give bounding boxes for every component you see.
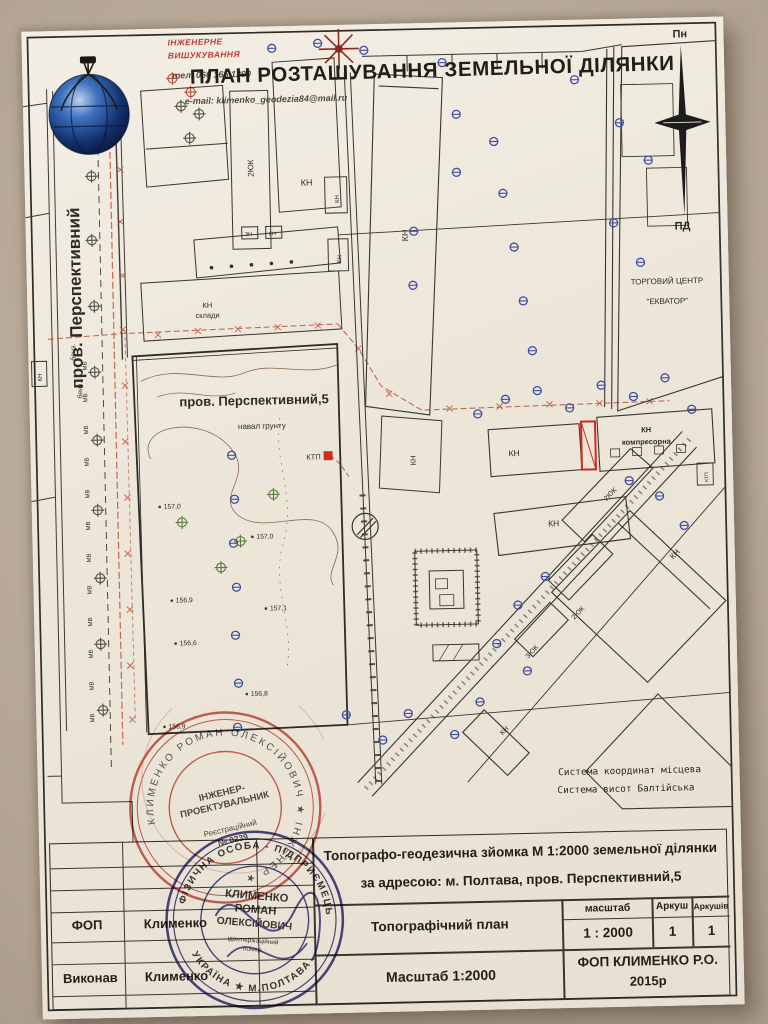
- diagonal-road: [350, 431, 732, 797]
- sheet-col-header: Аркуш: [652, 900, 691, 912]
- survey-title-line1: Топографо-геодезична зйомка М 1:2000 зем…: [318, 840, 722, 864]
- company-logo-globe: [36, 51, 148, 163]
- svg-text:МВ: МВ: [88, 617, 94, 626]
- svg-text:156,6: 156,6: [180, 640, 197, 647]
- bldg-label-kn: КН: [38, 374, 44, 382]
- firm-name: ФОП КЛИМЕНКО Р.О.: [565, 952, 731, 971]
- bldg-label-kn: КН: [509, 448, 520, 458]
- elevation-labels: 157,0 157,0 156,9 157,1 156,6 156,8 156,…: [164, 501, 290, 731]
- blue-stamp-line1: КЛИМЕНКО: [225, 888, 289, 905]
- mv-marker-labels: МВ МВ МВ МВ МВ МВ МВ МВ МВ МВ МВ МВ: [83, 361, 97, 722]
- scale-note: Масштаб 1:2000: [319, 965, 563, 986]
- compressor-buildings: [488, 409, 717, 556]
- bldg-label-2yuk: 2ЮК: [603, 486, 619, 502]
- bldg-label-kn: КН: [337, 255, 343, 263]
- kompresorna-label-1: КН: [641, 425, 651, 434]
- compass-south-label: ПД: [675, 220, 691, 232]
- svg-text:МВ: МВ: [90, 713, 96, 722]
- svg-text:157,0: 157,0: [256, 533, 273, 540]
- ktp-small-label: КТП: [704, 472, 710, 482]
- soil-note-label: навал грунту: [238, 421, 286, 431]
- paper-sheet: Пн ПД пров. Перспективний пров. Перспект…: [21, 16, 744, 1019]
- fop-label: ФОП: [72, 917, 103, 933]
- svg-text:157,1: 157,1: [270, 605, 287, 612]
- bldg-label-kn: КН: [301, 177, 313, 187]
- mall-label-1: ТОРГОВИЙ ЦЕНТР: [631, 276, 704, 287]
- bldg-label-kn: КН: [269, 231, 276, 237]
- benz-label: бенз.: [76, 382, 84, 399]
- ktp-label: КТП: [306, 452, 321, 461]
- svg-text:МВ: МВ: [89, 681, 95, 690]
- bldg-label-2yuk: 2ЮК: [246, 159, 255, 177]
- wall-dots: [210, 260, 294, 269]
- company-email: e-mail: klimenko_geodezia84@mail.ru: [185, 93, 348, 107]
- scale-value: 1 : 2000: [564, 924, 652, 941]
- company-name-line2: ВИШУКУВАННЯ: [168, 48, 240, 62]
- svg-text:156,8: 156,8: [251, 691, 268, 698]
- coord-system-line2: Система висот Балтійська: [557, 782, 694, 796]
- street-lines: [23, 88, 138, 844]
- scale-col-header: масштаб: [563, 901, 651, 915]
- svg-text:156,9: 156,9: [176, 597, 193, 604]
- bldg-label-kn: КН: [400, 229, 410, 241]
- coord-system-line1: Система координат місцева: [558, 764, 701, 778]
- svg-text:МВ: МВ: [87, 553, 93, 562]
- sklady-label-1: КН: [202, 301, 212, 310]
- bldg-label-kn: КН: [668, 547, 682, 561]
- doc-type: Топографічний план: [318, 915, 562, 935]
- company-name: ІНЖЕНЕРНЕ ВИШУКУВАННЯ: [167, 35, 240, 62]
- svg-text:МВ: МВ: [84, 425, 90, 434]
- bldg-label-kn: КН: [548, 518, 559, 528]
- survey-title-line2: за адресою: м. Полтава, пров. Перспектив…: [319, 868, 723, 892]
- manhole-symbols: [219, 31, 703, 747]
- street-cross-symbols: [83, 116, 110, 717]
- bldg-label-kn: КН: [335, 195, 341, 203]
- sheet-value: 1: [653, 923, 692, 939]
- contour-lines: [141, 365, 343, 669]
- kompresorna-label-2: компресорна: [622, 437, 672, 447]
- buildings-southeast: [457, 447, 733, 813]
- svg-text:МВ: МВ: [87, 585, 93, 594]
- bldg-label-kn: КН: [409, 455, 418, 465]
- blue-fop-stamp: ФІЗИЧНА ОСОБА - ПІДПРИЄМЕЦЬ УКРАЇНА ★ М.…: [158, 825, 352, 1015]
- railway-lines: [334, 65, 731, 785]
- exec-label: Виконав: [63, 970, 118, 986]
- svg-text:МВ: МВ: [86, 521, 92, 530]
- green-cross-symbols: [175, 488, 282, 575]
- building-tall-kn: [358, 73, 451, 495]
- svg-text:157,0: 157,0: [164, 503, 181, 510]
- firm-year: 2015р: [565, 972, 731, 991]
- svg-text:МВ: МВ: [89, 649, 95, 658]
- svg-text:МВ: МВ: [85, 457, 91, 466]
- bldg-label-zn: ЗН: [245, 232, 252, 238]
- sheets-value: 1: [693, 923, 730, 939]
- blue-stamp-line4: ідентифікаційний: [227, 934, 279, 946]
- mall-label-2: "ЕКВАТОР": [646, 296, 688, 306]
- svg-text:МВ: МВ: [85, 489, 91, 498]
- svg-text:МВ: МВ: [83, 361, 89, 370]
- ktp-marker: [324, 451, 333, 460]
- blue-stamp-line3: ОЛЕКСІЙОВИЧ: [216, 914, 292, 933]
- photo-of-survey-plan: { "header": { "company_line1": "ІНЖЕНЕРН…: [0, 0, 768, 1024]
- sheets-col-header: Аркушів: [692, 901, 729, 912]
- bldg-label-2yuk: 2ЮК: [571, 605, 587, 621]
- parcel-address-label: пров. Перспективний,5: [179, 391, 329, 409]
- document-title: ПЛАН РОЗТАШУВАННЯ ЗЕМЕЛЬНОЇ ДІЛЯНКИ: [172, 51, 692, 90]
- sklady-label-2: склади: [195, 311, 219, 321]
- header: ІНЖЕНЕРНЕ ВИШУКУВАННЯ тел. 066 165 1200 …: [21, 17, 723, 142]
- benz-label: бенз.: [69, 344, 77, 361]
